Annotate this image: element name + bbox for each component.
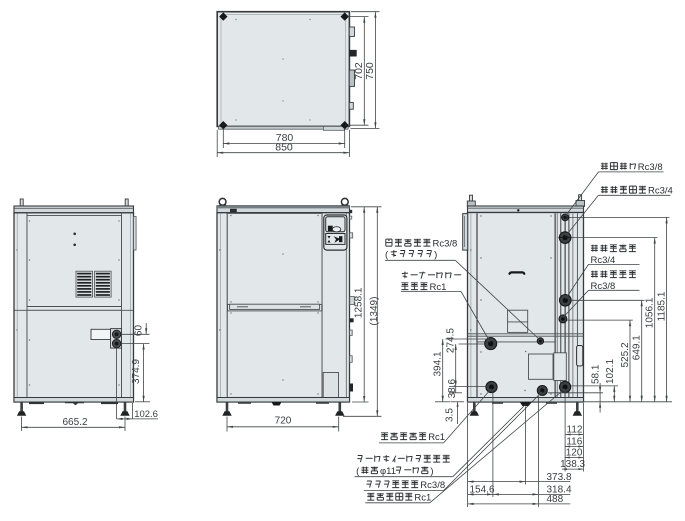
svg-text:(1349): (1349)	[369, 297, 380, 326]
svg-text:60: 60	[134, 325, 145, 337]
svg-text:102.1: 102.1	[605, 359, 616, 384]
svg-text:φ11: φ11	[380, 466, 396, 477]
svg-text:665.2: 665.2	[62, 417, 87, 428]
svg-text:58.1: 58.1	[591, 364, 602, 384]
svg-text:750: 750	[364, 62, 376, 80]
svg-text:373.8: 373.8	[547, 472, 572, 483]
svg-text:38.6: 38.6	[447, 378, 458, 398]
svg-text:Rc3/8: Rc3/8	[433, 238, 458, 249]
svg-text:154.6: 154.6	[470, 484, 495, 495]
svg-text:374.9: 374.9	[131, 359, 142, 384]
svg-text:1056.1: 1056.1	[644, 297, 655, 328]
svg-text:649.1: 649.1	[632, 335, 643, 360]
svg-text:488: 488	[547, 494, 564, 505]
svg-text:850: 850	[275, 142, 293, 154]
svg-text:702: 702	[353, 62, 365, 80]
svg-text:102.6: 102.6	[134, 409, 158, 420]
svg-text:138.3: 138.3	[560, 459, 585, 470]
svg-text:120: 120	[566, 447, 583, 458]
svg-text:116: 116	[566, 436, 582, 447]
svg-text:112: 112	[567, 424, 583, 435]
svg-text:720: 720	[275, 415, 292, 426]
svg-text:Rc3/8: Rc3/8	[420, 480, 445, 491]
svg-text:394.1: 394.1	[432, 351, 443, 376]
svg-text:Rc3/4: Rc3/4	[648, 185, 673, 196]
svg-text:525.2: 525.2	[620, 342, 631, 367]
svg-text:1258.1: 1258.1	[354, 287, 365, 318]
svg-text:1185.1: 1185.1	[656, 291, 667, 321]
svg-text:274.5: 274.5	[445, 328, 456, 353]
svg-text:Rc3/8: Rc3/8	[638, 162, 663, 173]
svg-text:Rc1: Rc1	[428, 432, 445, 443]
svg-text:): )	[430, 466, 433, 477]
svg-text:Rc1: Rc1	[414, 492, 431, 503]
svg-text:3.5: 3.5	[445, 408, 456, 422]
svg-text:): )	[434, 249, 437, 260]
